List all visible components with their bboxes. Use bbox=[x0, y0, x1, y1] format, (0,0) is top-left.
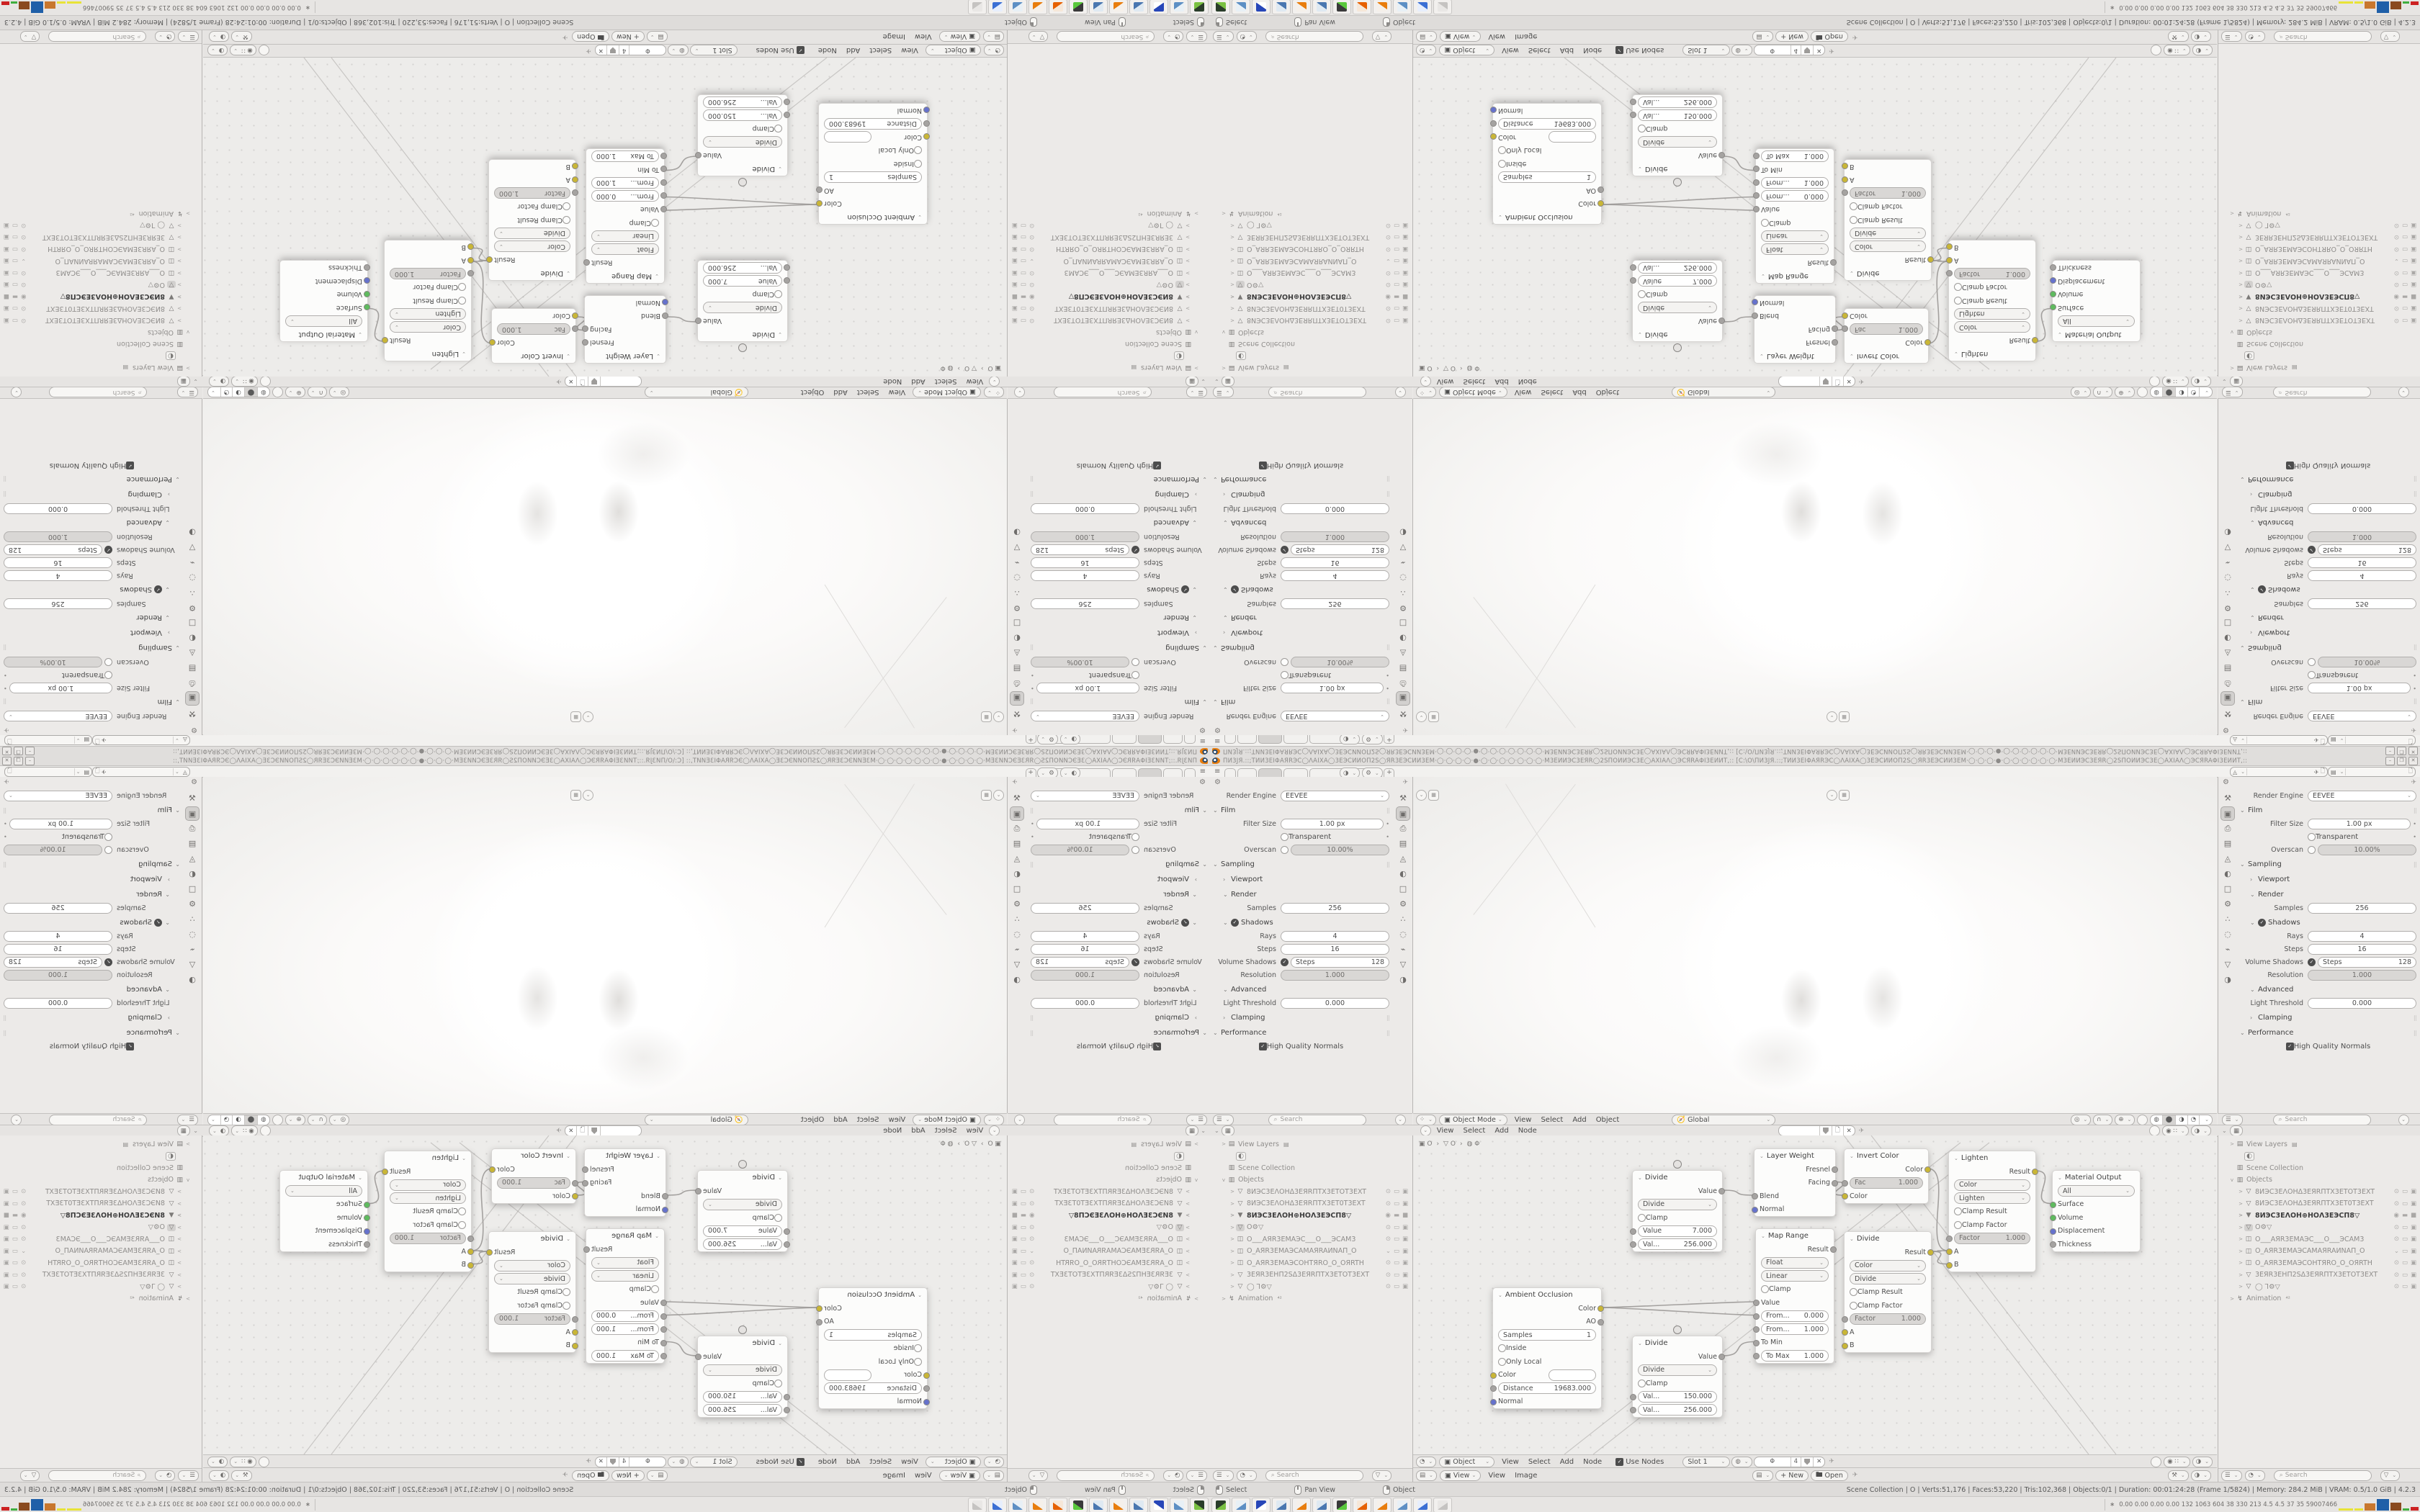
hide-eye-icon[interactable]: ⊙ bbox=[2394, 246, 2399, 253]
node-title[interactable]: ⌄Divide bbox=[1633, 328, 1722, 341]
socket-input-b[interactable] bbox=[1842, 1343, 1848, 1349]
taskbar-icon-monitor[interactable] bbox=[1069, 0, 1088, 15]
socket-input-displacement[interactable] bbox=[2050, 1228, 2056, 1235]
subpanel-clamping[interactable]: ›Clamping⣿ bbox=[2240, 1012, 2418, 1024]
property-field-samples[interactable]: 256 bbox=[1281, 903, 1389, 914]
outliner-row[interactable]: >▽8ИЭC3EΛOHΔ3EЯRПTX3ETOT3EXT⊙▭▣ bbox=[1009, 315, 1209, 327]
shader-menu-node[interactable]: Node bbox=[818, 47, 837, 55]
pin-icon[interactable]: ✈ bbox=[1859, 378, 1865, 385]
checkbox[interactable]: ✓ bbox=[154, 919, 162, 927]
expand-icon[interactable]: > bbox=[176, 1225, 183, 1230]
property-field-steps[interactable]: Steps128 bbox=[1291, 957, 1389, 968]
mode-dropdown[interactable]: ▣ Object Mode⌄ bbox=[913, 1115, 981, 1125]
socket-input-a[interactable] bbox=[1842, 1329, 1848, 1336]
disable-viewport-icon[interactable]: ▭ bbox=[2402, 1272, 2408, 1279]
expand-icon[interactable]: > bbox=[1193, 1296, 1200, 1302]
socket-output-result[interactable] bbox=[382, 1169, 388, 1175]
disable-viewport-icon[interactable]: ▭ bbox=[2402, 305, 2408, 312]
properties-tab-constraints-icon[interactable]: ⌁ bbox=[2220, 942, 2235, 957]
property-field-light-threshold[interactable]: 0.000 bbox=[2308, 998, 2416, 1009]
socket-input[interactable] bbox=[660, 1353, 667, 1359]
shader-node-editor[interactable]: ▣ O›▽ O›◍ Φ ⌄DivideValueDivide⌄ ClampVal… bbox=[1413, 58, 2217, 377]
node-select[interactable]: Color⌄ bbox=[1850, 240, 1926, 252]
copy-icon[interactable]: 🗋 bbox=[2321, 767, 2325, 777]
node-editor-type-icon[interactable]: ⌄ bbox=[1420, 376, 1431, 387]
properties-tab-physics-icon[interactable]: ◌ bbox=[185, 570, 200, 585]
node-title[interactable]: ⌄Map Range bbox=[586, 1229, 664, 1243]
socket-output-value[interactable] bbox=[1718, 152, 1725, 158]
node-checkbox-clamp[interactable] bbox=[1761, 1285, 1769, 1293]
node-field-val[interactable]: Val...256.000 bbox=[1638, 96, 1717, 108]
node-checkbox-inside[interactable] bbox=[914, 160, 922, 168]
close-button[interactable]: ✕ bbox=[2408, 747, 2418, 755]
socket-input[interactable] bbox=[1753, 1326, 1760, 1333]
outliner-row[interactable]: ◐ bbox=[2220, 350, 2419, 362]
outliner-row[interactable]: >▽3EЯR3EHП2SΔ3EЯRПTX3ETOT3EXT⊙▭▣ bbox=[1, 231, 200, 243]
workspace-tab[interactable] bbox=[1138, 735, 1162, 744]
viewport-corner-widgets[interactable]: ⌄▦ bbox=[1416, 790, 1439, 801]
overlay-options[interactable]: ◑⌄ bbox=[2191, 1470, 2211, 1481]
node-field-fac[interactable]: Fac1.000 bbox=[1850, 1177, 1923, 1189]
outliner-right-editor-icon[interactable]: ▦ bbox=[177, 376, 190, 387]
node-select[interactable]: Color⌄ bbox=[1850, 1260, 1926, 1272]
node-field-tomax[interactable]: To Max1.000 bbox=[591, 150, 659, 162]
panel-header-performance[interactable]: ⌄Performance⣿ bbox=[1029, 1027, 1207, 1039]
shading-mode-buttons[interactable]: ◍ ⬤ ◑ ◔ ⌄ bbox=[2150, 1115, 2213, 1125]
expand-icon[interactable]: > bbox=[2237, 1212, 2244, 1218]
subpanel-shadows[interactable]: ⌄✓Shadows bbox=[2, 917, 180, 929]
outliner-row[interactable]: >◫O___AЯR3EMAЭC___O___ЭCAM3⊙▭▣ bbox=[2220, 267, 2419, 279]
disable-render-icon[interactable]: ▣ bbox=[1402, 305, 1408, 312]
property-field-light-threshold[interactable]: 0.000 bbox=[4, 998, 112, 1009]
hide-eye-icon[interactable]: ⊙ bbox=[1386, 1272, 1391, 1279]
breadcrumb-item[interactable]: ◍ Φ bbox=[941, 1140, 954, 1148]
subpanel-shadows[interactable]: ⌄✓Shadows bbox=[1213, 917, 1391, 929]
image-menu-view[interactable]: View bbox=[915, 33, 932, 41]
outliner-row[interactable]: >◫O___AЯR3EMAЭC___O___ЭCAM3⊙▭▣ bbox=[1, 1233, 200, 1246]
editor-type-icon[interactable]: ▤⌄ bbox=[983, 32, 1004, 42]
checkbox[interactable]: ✓ bbox=[2308, 958, 2316, 966]
outliner-row[interactable]: >▽3EЯR3EHП2SΔ3EЯRПTX3ETOT3EXT⊙▭▣ bbox=[1211, 1269, 1411, 1282]
shading-mode-buttons[interactable]: ◍ ⬤ ◑ ◔ ⌄ bbox=[2150, 387, 2213, 398]
expand-icon[interactable]: v bbox=[1220, 329, 1227, 335]
shader-node-editor[interactable]: ▣ O›▽ O›◍ Φ ⌄DivideValueDivide⌄ ClampVal… bbox=[203, 58, 1007, 377]
filter-funnel-icon[interactable]: ▽⌄ bbox=[1028, 32, 1048, 42]
subpanel-render[interactable]: ⌄Render bbox=[1029, 888, 1207, 901]
hide-eye-icon[interactable]: ⊙ bbox=[2394, 1259, 2399, 1266]
viewport-menu-select[interactable]: Select bbox=[1541, 389, 1563, 397]
taskbar-icon-calculator[interactable] bbox=[1272, 1498, 1291, 1512]
disable-render-icon[interactable]: ▣ bbox=[1012, 1200, 1018, 1207]
outliner-row[interactable]: >▽8ИЭC3EΛOHΔ3EЯRПTX3ETOT3EXT⊙▭▣ bbox=[1, 1186, 200, 1198]
checkbox-transparent[interactable] bbox=[104, 833, 112, 841]
taskbar-icon-notepad[interactable] bbox=[1232, 1498, 1250, 1512]
node-divide[interactable]: ⌄DivideValueDivide⌄ ClampValue7.000Val..… bbox=[697, 1170, 788, 1252]
expand-icon[interactable]: > bbox=[176, 1236, 183, 1242]
socket-output-value[interactable] bbox=[695, 152, 702, 158]
expand-icon[interactable]: > bbox=[1229, 294, 1236, 300]
hide-eye-icon[interactable]: ◉ bbox=[21, 293, 26, 300]
proportional-edit-icon[interactable]: ◎⌄ bbox=[2071, 387, 2091, 398]
filter-mode-dropdown[interactable]: ◔⌄ bbox=[1163, 1470, 1183, 1481]
node-checkbox-clamp-result[interactable] bbox=[458, 297, 466, 305]
node-editor-type-icon[interactable]: ⌄ bbox=[989, 1125, 1000, 1136]
material-datablock[interactable]: 🗋 ✕ bbox=[1778, 1125, 1855, 1136]
socket-input-surface[interactable] bbox=[2050, 1202, 2056, 1208]
node-title[interactable]: ⌄Material Output bbox=[280, 1171, 367, 1184]
property-field-rays[interactable]: 4 bbox=[1031, 931, 1139, 942]
expand-icon[interactable]: > bbox=[1229, 1225, 1236, 1230]
property-field-steps[interactable]: 16 bbox=[2308, 944, 2416, 955]
property-field[interactable]: 10.00% bbox=[1031, 845, 1129, 855]
outliner-row[interactable]: ◐ bbox=[1211, 350, 1411, 362]
outliner-left-editor-icon[interactable]: ▦ bbox=[1186, 376, 1198, 387]
outliner-row[interactable]: ▥Scene Collection bbox=[1211, 338, 1411, 351]
hide-eye-icon[interactable]: ⌄ bbox=[1029, 257, 1034, 264]
use-nodes-checkbox[interactable]: ✓ bbox=[1615, 1458, 1623, 1466]
properties-tab-world-icon[interactable]: ◐ bbox=[2220, 867, 2235, 881]
checkbox[interactable] bbox=[1131, 846, 1139, 854]
node-select[interactable]: Divide⌄ bbox=[703, 1364, 782, 1376]
socket-input-normal[interactable] bbox=[1752, 300, 1758, 306]
node-title[interactable]: ⌄Divide bbox=[698, 1336, 787, 1350]
display-mode-dropdown[interactable]: ☰⌄ bbox=[1213, 32, 1234, 42]
image-context-dropdown[interactable]: ▣ View⌄ bbox=[939, 32, 980, 42]
expand-icon[interactable]: > bbox=[2237, 258, 2244, 264]
panel-header-performance[interactable]: ⌄Performance⣿ bbox=[2, 473, 180, 485]
node-divide[interactable]: ⌄DivideValueDivide⌄ ClampValue7.000Val..… bbox=[697, 261, 788, 343]
node-field-factor[interactable]: Factor1.000 bbox=[1954, 268, 2030, 279]
properties-tab-object-data-icon[interactable]: ▽ bbox=[1396, 540, 1410, 554]
disable-viewport-icon[interactable]: ▭ bbox=[12, 257, 18, 264]
expand-icon[interactable]: > bbox=[2237, 246, 2244, 252]
slot-dropdown[interactable]: Slot 1⌄ bbox=[690, 45, 738, 56]
node-title[interactable]: ⌄Invert Color bbox=[1845, 1149, 1928, 1163]
taskbar-icon-floppy-64[interactable] bbox=[1252, 1498, 1270, 1512]
display-filter-icon[interactable]: ☰⌄ bbox=[1187, 1115, 1208, 1125]
hide-eye-icon[interactable]: ⊙ bbox=[1029, 222, 1034, 229]
expand-icon[interactable]: > bbox=[176, 305, 183, 311]
properties-tab-constraints-icon[interactable]: ⌁ bbox=[1010, 942, 1024, 957]
animate-dot[interactable]: • bbox=[2413, 685, 2416, 692]
outliner-right-collapse[interactable]: ⌄ bbox=[193, 1128, 198, 1134]
properties-tab-particles-icon[interactable]: ∴ bbox=[1396, 912, 1410, 927]
disable-render-icon[interactable]: ▣ bbox=[4, 269, 9, 276]
collapse-icon[interactable]: ⌄ bbox=[12, 1115, 22, 1125]
properties-search[interactable]: ⌕ Search bbox=[50, 387, 148, 398]
outliner-row[interactable]: >▽◯ ⅂⚙▽⊙▭▣ bbox=[2220, 1281, 2419, 1293]
expand-icon[interactable]: > bbox=[176, 1248, 183, 1254]
outliner-row[interactable]: >◫O_AЯR3EMAЭCOHTЯRO_O_OЯRTH⊙▭▣ bbox=[2220, 243, 2419, 256]
viewport-menu-view[interactable]: View bbox=[1515, 389, 1532, 397]
checkbox[interactable] bbox=[2308, 846, 2316, 854]
disable-viewport-icon[interactable]: ▭ bbox=[2402, 1248, 2408, 1255]
title-bar[interactable]: ΠИ3JЯ.::;TИИ3ЕIΦAЯRЭC◯ΛAIXA◯3ЕЭCИИOП2S◯Я… bbox=[0, 746, 1210, 756]
minimize-button[interactable]: – bbox=[2385, 757, 2395, 765]
shader-menu-add[interactable]: Add bbox=[1560, 47, 1574, 55]
subpanel-render[interactable]: ⌄Render bbox=[2240, 611, 2418, 624]
disable-viewport-icon[interactable]: ▭ bbox=[1394, 1272, 1399, 1279]
outliner-row[interactable]: ▥Scene Collection bbox=[1009, 338, 1209, 351]
disable-viewport-icon[interactable]: ▭ bbox=[1021, 1188, 1026, 1195]
node-title[interactable]: ⌄Divide bbox=[1633, 1336, 1722, 1350]
socket-input[interactable] bbox=[784, 1394, 790, 1400]
node-preview-dot[interactable] bbox=[738, 343, 747, 352]
outliner-row[interactable]: ▥Scene Collection bbox=[2220, 1162, 2419, 1174]
property-field-resolution[interactable]: 1.000 bbox=[2308, 970, 2416, 981]
property-field-resolution[interactable]: 1.000 bbox=[1281, 970, 1389, 981]
disable-viewport-icon[interactable]: ▭ bbox=[1394, 1283, 1399, 1290]
outliner-row[interactable]: >▤View Layers▤ bbox=[1211, 362, 1411, 374]
hide-eye-icon[interactable]: ◉ bbox=[1029, 1212, 1034, 1219]
socket-output-color[interactable] bbox=[1597, 200, 1604, 207]
properties-tab-physics-icon[interactable]: ◌ bbox=[1396, 927, 1410, 942]
node-menu-select[interactable]: Select bbox=[935, 1127, 957, 1135]
socket-input-a[interactable] bbox=[1946, 257, 1953, 264]
new-image-button[interactable]: + New bbox=[1775, 32, 1809, 42]
node-material-output[interactable]: ⌄Material OutputAll⌄SurfaceVolumeDisplac… bbox=[2052, 261, 2141, 343]
hide-eye-icon[interactable]: ⊙ bbox=[2394, 1236, 2399, 1243]
checkbox-high-quality-normals[interactable]: ✓ bbox=[2286, 1043, 2294, 1050]
hide-eye-icon[interactable]: ⊙ bbox=[2394, 269, 2399, 276]
outliner-row[interactable]: >▽O ⚙▽⊙▭▣ bbox=[1009, 279, 1209, 291]
properties-search[interactable]: ⌕ Search bbox=[1054, 387, 1152, 398]
expand-icon[interactable]: > bbox=[176, 1284, 183, 1290]
breadcrumb-item[interactable]: ▣ O bbox=[988, 364, 1001, 372]
properties-tab-material-icon[interactable]: ◑ bbox=[185, 525, 200, 539]
node-menu-select[interactable]: Select bbox=[1463, 377, 1485, 385]
properties-tab-scene-icon[interactable]: ◬ bbox=[1010, 646, 1024, 660]
outliner-row[interactable]: >▼8ИЭC3EΛOH⊕HOΛ3EЭCП8 ▽◉▬■ bbox=[1211, 291, 1411, 303]
hide-eye-icon[interactable]: ⌄ bbox=[2394, 257, 2399, 264]
property-field-steps[interactable]: Steps128 bbox=[4, 957, 102, 968]
workspace-tab[interactable] bbox=[1138, 768, 1162, 777]
socket-output-value[interactable] bbox=[1718, 1354, 1725, 1360]
snap-toggle[interactable] bbox=[259, 45, 269, 56]
socket-input-normal[interactable] bbox=[1490, 1399, 1497, 1405]
scene-selector[interactable]: ◬⌄✈🗋 bbox=[92, 735, 190, 745]
gizmo-toggle[interactable] bbox=[2137, 387, 2148, 398]
shader-context-dropdown[interactable]: ▣ Object⌄ bbox=[1439, 45, 1494, 56]
material-datablock[interactable]: Φ 4 ✕ bbox=[1754, 1457, 1826, 1467]
node-select[interactable]: Float⌄ bbox=[591, 243, 659, 255]
disable-render-icon[interactable]: ▣ bbox=[1012, 1236, 1018, 1243]
node-field-distance[interactable]: Distance19683.000 bbox=[824, 118, 922, 130]
viewport-menu-object[interactable]: Object bbox=[801, 389, 825, 397]
disable-viewport-icon[interactable]: ▭ bbox=[1021, 1248, 1026, 1255]
expand-icon[interactable]: v bbox=[184, 1177, 192, 1183]
outliner-row[interactable]: >▽8ИЭC3EΛOHΔ3EЯRПTX3ET0T3EXT⊙▭▣ bbox=[1009, 1198, 1209, 1210]
taskbar-icon-floppy-64[interactable] bbox=[1252, 0, 1270, 15]
workspace-tab[interactable] bbox=[1184, 735, 1196, 744]
taskbar-icon-blender[interactable] bbox=[1292, 0, 1311, 15]
panel-header-performance[interactable]: ⌄Performance⣿ bbox=[2240, 1027, 2418, 1039]
properties-tab-modifiers-icon[interactable]: ⚙ bbox=[2220, 600, 2235, 615]
display-mode-dropdown[interactable]: ☰⌄ bbox=[179, 1470, 200, 1481]
shader-menu-add[interactable]: Add bbox=[1560, 1458, 1574, 1466]
snap-magnet-icon[interactable]: ∩⌄ bbox=[308, 1115, 327, 1125]
display-filter-icon[interactable]: ☰⌄ bbox=[1213, 1115, 1234, 1125]
properties-tab-object-data-icon[interactable]: ▽ bbox=[1010, 958, 1024, 972]
property-field-rays[interactable]: 4 bbox=[2308, 931, 2416, 942]
expand-icon[interactable]: > bbox=[1229, 305, 1236, 311]
node-select[interactable]: Float⌄ bbox=[591, 1257, 659, 1269]
hide-eye-icon[interactable]: ⊙ bbox=[21, 317, 26, 324]
node-select[interactable]: Lighten⌄ bbox=[390, 1192, 466, 1204]
panel-header-sampling[interactable]: ⌄Sampling⣿ bbox=[1029, 642, 1207, 654]
outliner-row[interactable]: ▥Scene Collection bbox=[1, 1162, 200, 1174]
panel-header-sampling[interactable]: ⌄Sampling⣿ bbox=[2, 642, 180, 654]
node-menu-add[interactable]: Add bbox=[1494, 377, 1508, 385]
property-field-steps[interactable]: 16 bbox=[2308, 558, 2416, 569]
browse-image-icon[interactable]: ▤⌄ bbox=[1752, 32, 1773, 42]
properties-tab-object-icon[interactable]: □ bbox=[1010, 882, 1024, 896]
disable-render-icon[interactable]: ▣ bbox=[4, 246, 9, 253]
disable-viewport-icon[interactable]: ▬ bbox=[2402, 1212, 2408, 1219]
outliner-row[interactable]: >◫O_AЯR3EMAЭCOHTЯRO_O_OЯRTH⊙▭▣ bbox=[1009, 243, 1209, 256]
image-menu-image[interactable]: Image bbox=[1515, 1472, 1537, 1480]
node-checkbox-clamp-factor[interactable] bbox=[1850, 1302, 1857, 1310]
browse-material-icon[interactable]: ◍⌄ bbox=[668, 1457, 688, 1467]
outliner-row[interactable]: >↯Animation⁴² bbox=[1211, 1293, 1411, 1305]
socket-output-result[interactable] bbox=[382, 337, 388, 343]
node-field-val[interactable]: Val...256.000 bbox=[703, 1404, 782, 1416]
properties-tab-scene-icon[interactable]: ◬ bbox=[185, 646, 200, 660]
new-image-button[interactable]: + New bbox=[1775, 1470, 1809, 1481]
socket-input-color[interactable] bbox=[1490, 1372, 1497, 1379]
checkbox[interactable]: ✓ bbox=[1181, 919, 1189, 927]
node-menu-node[interactable]: Node bbox=[1518, 377, 1537, 385]
viewport-menu-object[interactable]: Object bbox=[1596, 389, 1620, 397]
expand-icon[interactable]: v bbox=[184, 329, 192, 335]
disable-render-icon[interactable]: ▣ bbox=[4, 233, 9, 240]
properties-tab-material-icon[interactable]: ◑ bbox=[1010, 525, 1024, 539]
animate-dot[interactable]: • bbox=[1031, 672, 1034, 679]
property-field-rays[interactable]: 4 bbox=[1281, 571, 1389, 582]
tool-options[interactable]: ⚒⌄ bbox=[2168, 1470, 2189, 1481]
expand-icon[interactable]: > bbox=[184, 1141, 192, 1147]
disable-render-icon[interactable]: ■ bbox=[1402, 1212, 1408, 1219]
outliner-row[interactable]: >↯Animation⁴² bbox=[1009, 207, 1209, 220]
socket-input-value[interactable] bbox=[660, 1300, 667, 1306]
editor-type-icon[interactable]: ▤⌄ bbox=[983, 1470, 1004, 1481]
hide-eye-icon[interactable]: ⊙ bbox=[1029, 305, 1034, 312]
socket-input-thickness[interactable] bbox=[364, 1241, 370, 1248]
snap-toggle[interactable] bbox=[259, 1457, 269, 1467]
node-divide[interactable]: ⌄DivideResultColor⌄Divide⌄ Clamp Result … bbox=[488, 159, 576, 281]
overlay-options[interactable]: ◑⌄ bbox=[2191, 376, 2211, 387]
property-field-light-threshold[interactable]: 0.000 bbox=[1281, 504, 1389, 515]
node-checkbox-clamp[interactable] bbox=[651, 1285, 659, 1293]
subpanel-advanced[interactable]: ⌄Advanced bbox=[1029, 984, 1207, 996]
property-field-light-threshold[interactable]: 0.000 bbox=[2308, 504, 2416, 515]
disable-viewport-icon[interactable]: ▭ bbox=[2402, 1259, 2408, 1266]
display-filter-icon[interactable]: ☰⌄ bbox=[2222, 1115, 2243, 1125]
disable-viewport-icon[interactable]: ▭ bbox=[1021, 1272, 1026, 1279]
node-field-tomax[interactable]: To Max1.000 bbox=[1761, 150, 1829, 162]
disable-render-icon[interactable]: ▣ bbox=[4, 222, 9, 229]
socket-input-a[interactable] bbox=[572, 176, 578, 183]
socket-output-color[interactable] bbox=[816, 200, 823, 207]
properties-tab-material-icon[interactable]: ◑ bbox=[1396, 525, 1410, 539]
socket-input-volume[interactable] bbox=[364, 1215, 370, 1221]
gizmo-toggle[interactable] bbox=[272, 1115, 283, 1125]
node-select[interactable]: Color⌄ bbox=[1954, 1179, 2030, 1191]
orientation-dropdown[interactable]: 🧭 Global⌄ bbox=[1672, 1115, 1775, 1125]
expand-icon[interactable]: > bbox=[2237, 305, 2244, 311]
pin-icon[interactable]: ✈ bbox=[2411, 726, 2416, 734]
hide-eye-icon[interactable]: ⊙ bbox=[1029, 1188, 1034, 1195]
node-select[interactable]: All⌄ bbox=[285, 1185, 362, 1197]
pin-icon[interactable]: ✈ bbox=[4, 779, 9, 786]
outliner-row[interactable]: >↯Animation⁴² bbox=[1, 1293, 200, 1305]
properties-tab-object-icon[interactable]: □ bbox=[185, 616, 200, 630]
snapping-options[interactable]: ◉ ∷⌄ bbox=[2162, 1125, 2188, 1136]
outliner-row[interactable]: >◫O___AЯR3EMAЭC___O___ЭCAM3⊙▭▣ bbox=[2220, 1233, 2419, 1246]
properties-tab-physics-icon[interactable]: ◌ bbox=[185, 927, 200, 942]
expand-icon[interactable]: > bbox=[1229, 258, 1236, 264]
properties-tab-modifiers-icon[interactable]: ⚙ bbox=[1396, 600, 1410, 615]
node-field-val[interactable]: Val...150.000 bbox=[1638, 1391, 1717, 1403]
display-filter-icon[interactable]: ☰⌄ bbox=[178, 1115, 199, 1125]
disable-render-icon[interactable]: ▣ bbox=[1012, 1259, 1018, 1266]
disable-render-icon[interactable]: ▣ bbox=[1402, 1272, 1408, 1279]
outliner-row[interactable]: >▽8ИЭC3EΛOHΔ3EЯRПTX3ET0T3EXT⊙▭▣ bbox=[2220, 302, 2419, 315]
node-select[interactable]: Float⌄ bbox=[1761, 1257, 1829, 1269]
overlay-options[interactable]: ◑⌄ bbox=[209, 1125, 229, 1136]
socket-output-facing[interactable] bbox=[582, 1180, 588, 1187]
shader-menu-node[interactable]: Node bbox=[1583, 47, 1602, 55]
hide-eye-icon[interactable]: ⌄ bbox=[1386, 257, 1391, 264]
property-field-steps[interactable]: 16 bbox=[1031, 558, 1139, 569]
animate-dot[interactable]: • bbox=[4, 834, 7, 840]
outliner-row[interactable]: >◫O_AЯR3EMAЭCOHTЯRO_O_OЯRTH⊙▭▣ bbox=[1009, 1257, 1209, 1269]
shader-menu-view[interactable]: View bbox=[901, 1458, 918, 1466]
property-field-render-engine[interactable]: EEVEE⌄ bbox=[1031, 791, 1139, 801]
animate-dot[interactable]: • bbox=[2413, 672, 2416, 679]
expand-icon[interactable]: > bbox=[176, 294, 183, 300]
property-field-rays[interactable]: 4 bbox=[1281, 931, 1389, 942]
properties-tab-modifiers-icon[interactable]: ⚙ bbox=[185, 600, 200, 615]
restore-button[interactable]: ❐ bbox=[14, 747, 23, 755]
node-ambient-occlusion[interactable]: ⌄Ambient OcclusionColorAOSamples1 Inside… bbox=[1492, 1287, 1602, 1409]
properties-tab-tool-icon[interactable]: ⚒ bbox=[1010, 791, 1024, 806]
properties-tab-particles-icon[interactable]: ∴ bbox=[1396, 585, 1410, 600]
property-field-render-engine[interactable]: EEVEE⌄ bbox=[4, 711, 112, 722]
node-checkbox-clamp[interactable] bbox=[774, 125, 782, 132]
browse-material-icon[interactable]: ◍⌄ bbox=[668, 45, 688, 56]
expand-icon[interactable]: > bbox=[1184, 305, 1191, 311]
disable-render-icon[interactable]: ▣ bbox=[1402, 281, 1408, 288]
property-field-steps[interactable]: 16 bbox=[1031, 944, 1139, 955]
pin-icon[interactable]: ✈ bbox=[1829, 47, 1834, 54]
disable-viewport-icon[interactable]: ▭ bbox=[2402, 1236, 2408, 1243]
disable-viewport-icon[interactable]: ▭ bbox=[1021, 246, 1026, 253]
disable-render-icon[interactable]: ▣ bbox=[1012, 305, 1018, 312]
add-workspace-button[interactable]: + bbox=[1026, 735, 1036, 744]
expand-icon[interactable]: > bbox=[1184, 294, 1191, 300]
node-field-factor[interactable]: Factor1.000 bbox=[1954, 1233, 2030, 1244]
node-select[interactable]: Divide⌄ bbox=[1638, 302, 1717, 313]
display-mode-dropdown[interactable]: ☰⌄ bbox=[2221, 1470, 2242, 1481]
property-field-steps[interactable]: Steps128 bbox=[2318, 957, 2416, 968]
disable-viewport-icon[interactable]: ▬ bbox=[1394, 1212, 1399, 1219]
outliner-row[interactable]: >↯Animation⁴² bbox=[2220, 207, 2419, 220]
panel-header-sampling[interactable]: ⌄Sampling⣿ bbox=[1213, 642, 1391, 654]
tool-widget[interactable]: ◑⌄ bbox=[1060, 734, 1080, 744]
disable-viewport-icon[interactable]: ▭ bbox=[12, 1272, 18, 1279]
disable-viewport-icon[interactable]: ▭ bbox=[1021, 257, 1026, 264]
